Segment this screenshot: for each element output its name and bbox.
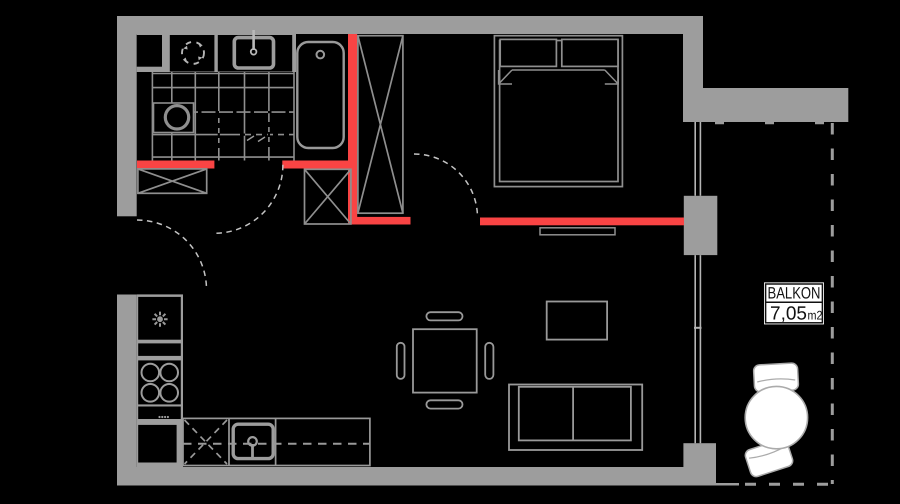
svg-text:m2: m2 [807, 309, 822, 323]
svg-text:BALKON: BALKON [767, 284, 820, 302]
svg-text:7,05: 7,05 [770, 303, 807, 324]
